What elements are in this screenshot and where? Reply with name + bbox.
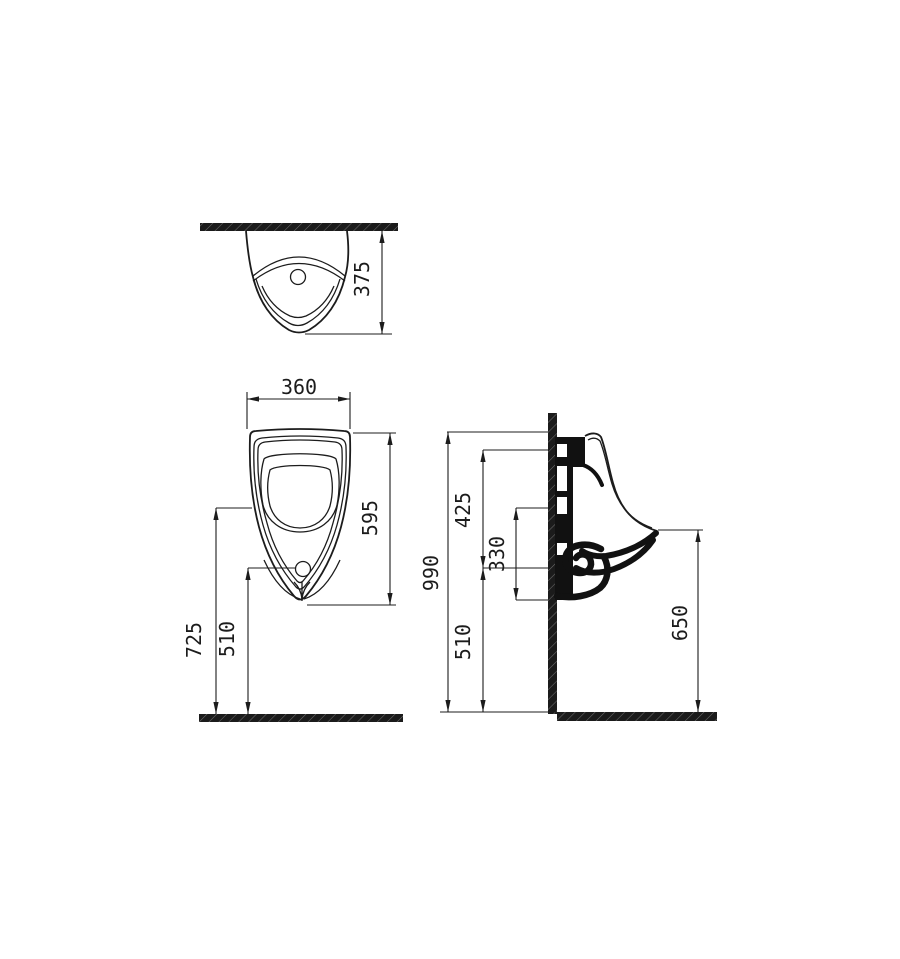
arrowhead bbox=[695, 530, 700, 542]
dim-label-side-outlet-height: 510 bbox=[451, 624, 475, 660]
top-view-inlet-circle bbox=[291, 270, 306, 285]
top-view: 375 bbox=[200, 223, 398, 334]
arrowhead bbox=[245, 568, 250, 580]
side-view-floor-section bbox=[557, 712, 717, 721]
top-view-rim-arc-outer bbox=[253, 257, 345, 276]
dim-label-front-width: 360 bbox=[281, 375, 317, 399]
dim-label-side-total-height: 990 bbox=[419, 555, 443, 591]
arrowhead bbox=[213, 508, 218, 520]
side-view-inlet-channel bbox=[583, 465, 602, 485]
top-view-rim-inner-line bbox=[256, 279, 340, 326]
side-view-cavity-1 bbox=[557, 466, 567, 491]
dim-label-front-rim-height: 725 bbox=[182, 622, 206, 658]
arrowhead bbox=[513, 508, 518, 520]
front-view-rim-line-2 bbox=[258, 440, 342, 583]
side-view-inlet-hole bbox=[557, 444, 567, 457]
arrowhead bbox=[513, 588, 518, 600]
side-view: 990 425 330 510 650 bbox=[419, 413, 717, 721]
side-view-cavity-2 bbox=[557, 497, 567, 514]
technical-drawing-canvas: 375 360 595 725 bbox=[0, 0, 900, 959]
front-view: 360 595 725 510 bbox=[182, 375, 403, 722]
arrowhead bbox=[213, 702, 218, 714]
dim-label-front-drain-height: 510 bbox=[215, 621, 239, 657]
arrowhead bbox=[387, 433, 392, 445]
front-view-bowl-inner bbox=[268, 466, 333, 529]
front-view-floor-section bbox=[199, 714, 403, 722]
front-view-drain-circle bbox=[296, 562, 311, 577]
arrowhead bbox=[695, 700, 700, 712]
dim-label-side-mid-span: 330 bbox=[485, 536, 509, 572]
dim-label-side-lip-height: 650 bbox=[668, 605, 692, 641]
dim-label-top-depth: 375 bbox=[350, 261, 374, 297]
top-view-bowl-line bbox=[262, 286, 334, 318]
arrowhead bbox=[445, 700, 450, 712]
dim-label-side-top-offset: 425 bbox=[451, 492, 475, 528]
urinal-dimension-drawing: 375 360 595 725 bbox=[0, 0, 900, 959]
top-view-wall-section bbox=[200, 223, 398, 231]
arrowhead bbox=[387, 593, 392, 605]
arrowhead bbox=[445, 432, 450, 444]
dim-label-front-height: 595 bbox=[358, 500, 382, 536]
arrowhead bbox=[245, 702, 250, 714]
side-view-back-column bbox=[555, 437, 573, 600]
arrowhead bbox=[480, 450, 485, 462]
side-view-rim-outer bbox=[585, 433, 657, 531]
arrowhead bbox=[379, 322, 384, 334]
arrowhead bbox=[480, 700, 485, 712]
side-view-rim-inner bbox=[588, 438, 652, 528]
arrowhead bbox=[338, 396, 350, 401]
arrowhead bbox=[379, 231, 384, 243]
arrowhead bbox=[247, 396, 259, 401]
